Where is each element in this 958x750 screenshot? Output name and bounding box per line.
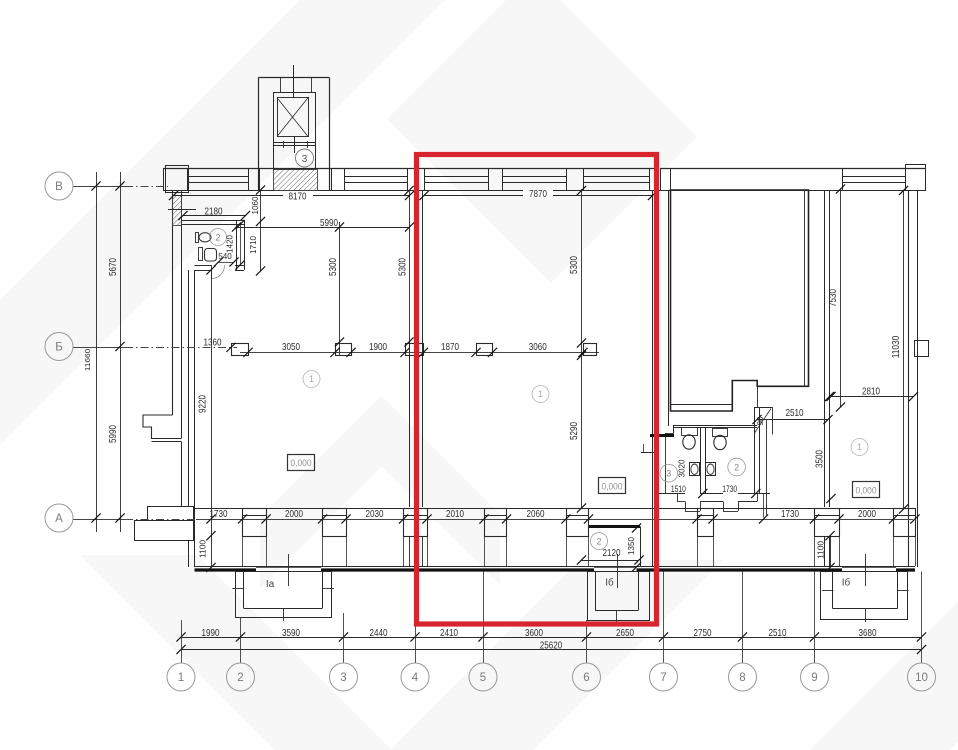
svg-text:3500: 3500 xyxy=(814,450,826,468)
svg-text:Iб: Iб xyxy=(842,577,851,589)
svg-text:5990: 5990 xyxy=(320,217,338,229)
svg-text:2650: 2650 xyxy=(616,627,634,639)
svg-text:1: 1 xyxy=(178,672,184,684)
svg-text:2000: 2000 xyxy=(285,508,303,520)
svg-text:9: 9 xyxy=(811,672,817,684)
svg-text:1: 1 xyxy=(309,374,314,384)
svg-text:3020: 3020 xyxy=(677,459,687,477)
svg-text:2: 2 xyxy=(596,537,601,547)
svg-text:7530: 7530 xyxy=(827,289,839,307)
svg-text:2120: 2120 xyxy=(603,547,621,559)
svg-text:0,000: 0,000 xyxy=(291,458,312,469)
svg-text:1730: 1730 xyxy=(781,508,799,520)
svg-text:5990: 5990 xyxy=(107,425,119,443)
svg-text:2510: 2510 xyxy=(786,407,804,419)
svg-text:9220: 9220 xyxy=(197,395,209,413)
svg-text:2000: 2000 xyxy=(858,508,876,520)
svg-text:3680: 3680 xyxy=(859,627,877,639)
svg-text:5670: 5670 xyxy=(107,258,119,276)
svg-text:5300: 5300 xyxy=(397,258,409,276)
svg-text:3: 3 xyxy=(302,154,308,165)
svg-text:0,000: 0,000 xyxy=(602,482,623,493)
svg-text:2: 2 xyxy=(215,233,220,243)
svg-text:Iа: Iа xyxy=(266,579,275,590)
svg-text:1730: 1730 xyxy=(722,484,737,495)
svg-text:1900: 1900 xyxy=(369,341,387,353)
svg-text:8: 8 xyxy=(739,672,745,684)
svg-text:11660: 11660 xyxy=(83,349,92,372)
svg-text:2010: 2010 xyxy=(446,508,464,520)
svg-text:7870: 7870 xyxy=(529,188,547,200)
svg-text:1360: 1360 xyxy=(204,337,222,349)
svg-text:1510: 1510 xyxy=(671,484,686,495)
svg-text:11030: 11030 xyxy=(890,336,902,359)
svg-text:2030: 2030 xyxy=(366,508,384,520)
svg-text:1060: 1060 xyxy=(250,196,260,214)
svg-text:5300: 5300 xyxy=(327,258,339,276)
svg-text:1990: 1990 xyxy=(202,627,220,639)
svg-text:А: А xyxy=(55,513,63,525)
svg-text:1350: 1350 xyxy=(626,537,636,555)
svg-text:3590: 3590 xyxy=(282,627,300,639)
svg-text:90: 90 xyxy=(756,416,765,426)
svg-text:В: В xyxy=(55,181,63,193)
svg-text:1730: 1730 xyxy=(210,508,228,520)
svg-text:3: 3 xyxy=(666,469,671,479)
svg-text:2: 2 xyxy=(237,672,243,684)
svg-text:1100: 1100 xyxy=(816,541,826,559)
svg-text:3600: 3600 xyxy=(525,627,543,639)
svg-text:1100: 1100 xyxy=(198,540,208,558)
svg-text:5290: 5290 xyxy=(568,422,580,440)
svg-text:10: 10 xyxy=(915,672,928,684)
svg-text:5: 5 xyxy=(480,672,486,684)
svg-text:2180: 2180 xyxy=(205,205,223,217)
svg-text:2510: 2510 xyxy=(769,627,787,639)
svg-text:2440: 2440 xyxy=(370,627,388,639)
svg-text:5300: 5300 xyxy=(568,256,580,274)
svg-text:2: 2 xyxy=(734,463,739,473)
svg-text:7: 7 xyxy=(660,672,666,684)
svg-text:2750: 2750 xyxy=(694,627,712,639)
svg-text:540: 540 xyxy=(218,251,232,261)
svg-text:Iб: Iб xyxy=(605,577,614,589)
svg-text:6: 6 xyxy=(583,672,589,684)
svg-text:2060: 2060 xyxy=(527,508,545,520)
svg-text:3: 3 xyxy=(340,672,346,684)
svg-text:1: 1 xyxy=(538,389,543,399)
svg-text:4: 4 xyxy=(412,672,419,684)
svg-text:1710: 1710 xyxy=(248,236,258,254)
svg-text:25620: 25620 xyxy=(540,639,563,651)
svg-text:3050: 3050 xyxy=(282,341,300,353)
svg-text:2410: 2410 xyxy=(440,627,458,639)
svg-text:Б: Б xyxy=(55,342,63,354)
svg-text:1: 1 xyxy=(857,442,862,452)
svg-text:0,000: 0,000 xyxy=(856,486,877,497)
svg-text:1870: 1870 xyxy=(441,341,459,353)
svg-text:3060: 3060 xyxy=(529,341,547,353)
svg-text:8170: 8170 xyxy=(289,191,307,203)
svg-text:2810: 2810 xyxy=(862,385,880,397)
